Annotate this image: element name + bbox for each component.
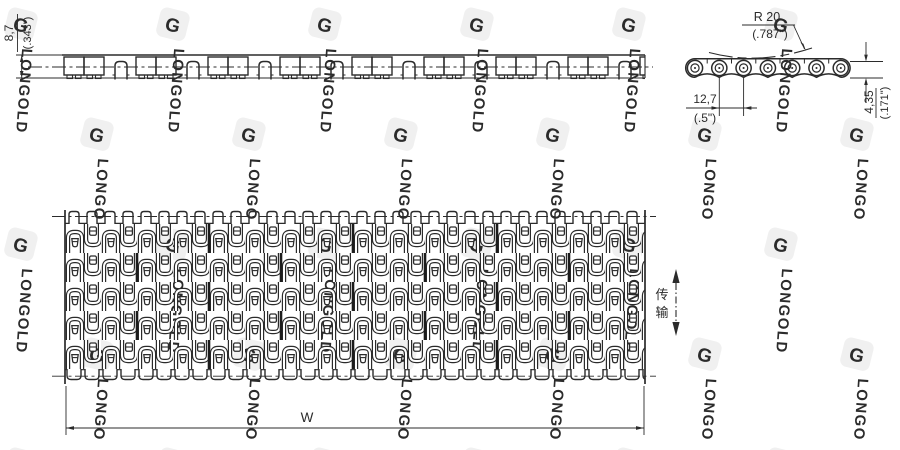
dim-pitch-in: (.5") xyxy=(694,111,716,125)
dim-edge-height-in: (.171") xyxy=(879,87,891,120)
dim-thickness-mm: 8,7 xyxy=(2,24,16,41)
side-view-link-pattern xyxy=(62,54,645,81)
dim-radius-mm: R 20 xyxy=(754,10,780,24)
dim-width-label: W xyxy=(301,410,314,425)
dim-thickness-in: (.343") xyxy=(22,17,34,50)
dim-radius-in: (.787") xyxy=(752,27,788,41)
direction-label-top: 传 xyxy=(655,287,668,302)
dim-pitch-mm: 12,7 xyxy=(693,92,717,106)
plan-top-knuckles xyxy=(65,208,645,224)
plan-link-pattern xyxy=(65,224,645,369)
direction-label-bottom: 输 xyxy=(655,305,668,320)
dim-edge-height-mm: 4,35 xyxy=(862,90,876,114)
technical-drawing-canvas: G LONGOLD G LONGOLD xyxy=(0,0,900,450)
